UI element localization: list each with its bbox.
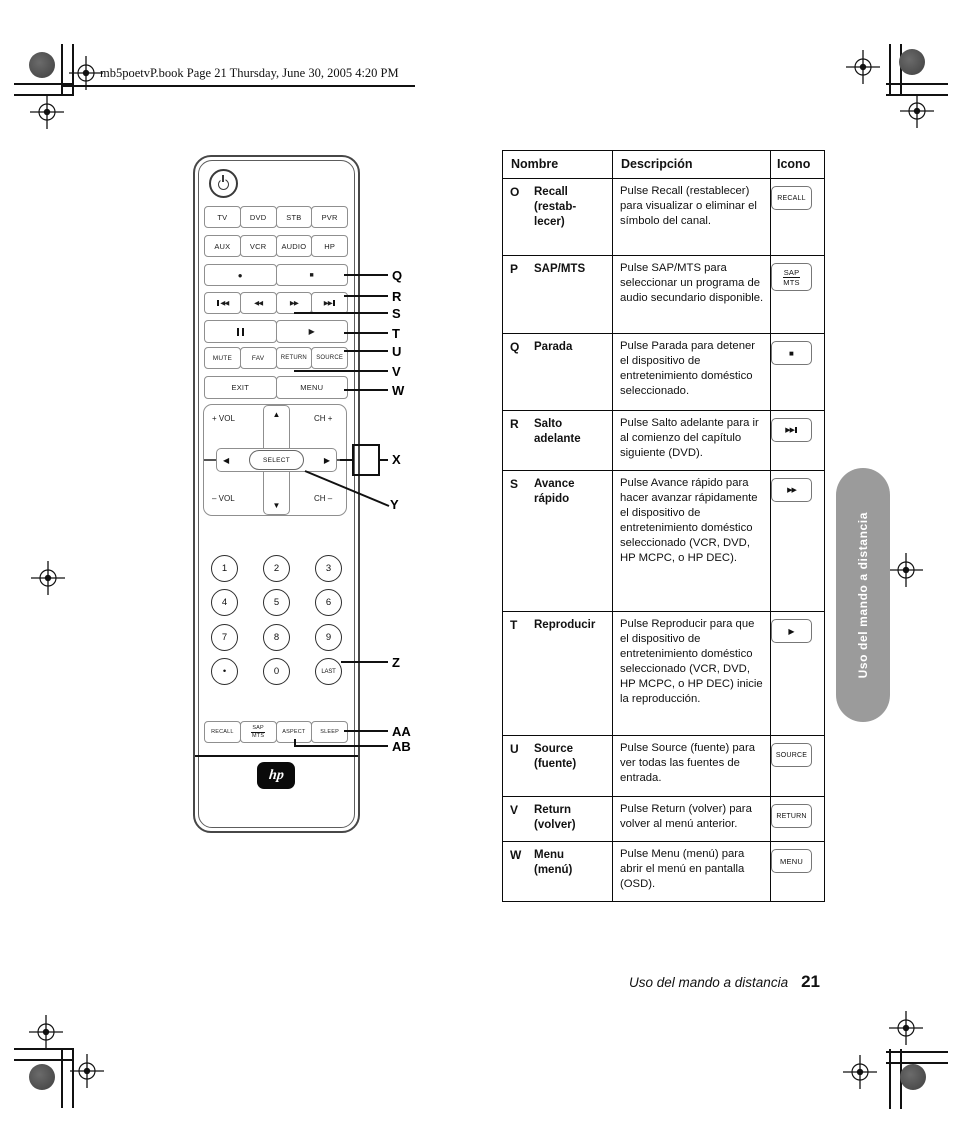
ink-registration-dot <box>29 1064 55 1090</box>
tv-button: TV <box>204 206 241 228</box>
callout-line-t <box>344 332 388 334</box>
row-description: Pulse Parada para detener el dispositivo… <box>613 334 770 403</box>
record-button: ● <box>204 264 277 286</box>
stop-icon: ■ <box>771 341 812 365</box>
registration-mark-icon <box>843 1055 877 1089</box>
row-description: Pulse Recall (restablecer) para visualiz… <box>613 179 770 233</box>
key-4: 4 <box>211 589 238 616</box>
key-8: 8 <box>263 624 290 651</box>
row-name: Reproducir <box>534 618 595 633</box>
crop-mark <box>886 1062 948 1064</box>
recall-icon: RECALL <box>771 186 812 210</box>
callout-line-w <box>344 389 388 391</box>
table-row: PSAP/MTS Pulse SAP/MTS para seleccionar … <box>503 256 825 334</box>
footer-chapter-label: Uso del mando a distancia <box>629 975 788 990</box>
table-row: WMenu (menú) Pulse Menu (menú) para abri… <box>503 842 825 902</box>
callout-line-u <box>344 350 388 352</box>
side-tab-label: Uso del mando a distancia <box>856 512 870 678</box>
row-letter: W <box>510 848 534 878</box>
table-row: TReproducir Pulse Reproducir para que el… <box>503 612 825 736</box>
arrow-down-icon: ▼ <box>273 501 281 510</box>
col-header-nombre: Nombre <box>503 151 613 179</box>
table-row: USource (fuente) Pulse Source (fuente) p… <box>503 736 825 797</box>
skip-back-button: ◀◀ <box>204 292 241 314</box>
crop-mark <box>889 1049 891 1109</box>
table-header-row: Nombre Descripción Icono <box>503 151 825 179</box>
last-button: LAST <box>315 658 342 685</box>
callout-y: Y <box>390 497 399 512</box>
stop-icon: ■ <box>310 272 314 279</box>
callout-z: Z <box>392 655 400 670</box>
callout-w: W <box>392 383 404 398</box>
stb-button: STB <box>276 206 313 228</box>
callout-line-ab <box>294 745 388 747</box>
row-description: Pulse Menu (menú) para abrir el menú en … <box>613 842 770 896</box>
row-letter: T <box>510 618 534 633</box>
row-name: Parada <box>534 340 572 355</box>
callout-aa: AA <box>392 724 411 739</box>
row-description: Pulse Return (volver) para volver al men… <box>613 797 770 836</box>
key-9: 9 <box>315 624 342 651</box>
source-button: SOURCE <box>311 347 348 369</box>
sleep-button: SLEEP <box>311 721 348 743</box>
registration-mark-icon <box>31 561 65 595</box>
row-name: Menu (menú) <box>534 848 572 878</box>
row-name: Return (volver) <box>534 803 576 833</box>
footer-page-number: 21 <box>801 972 820 992</box>
manual-page: mb5poetvP.book Page 21 Thursday, June 30… <box>0 0 954 1145</box>
row-name: Recall (restab- lecer) <box>534 185 576 230</box>
hp-button: HP <box>311 235 348 257</box>
callout-r: R <box>392 289 401 304</box>
crop-mark <box>61 44 63 96</box>
audio-button: AUDIO <box>276 235 313 257</box>
callout-q: Q <box>392 268 402 283</box>
table-row: SAvance rápido Pulse Avance rápido para … <box>503 471 825 612</box>
registration-mark-icon <box>900 94 934 128</box>
callout-line-r <box>344 295 388 297</box>
callout-x: X <box>392 452 401 467</box>
callout-line-v <box>294 370 388 372</box>
sap-mts-button: SAPMTS <box>240 721 277 743</box>
recall-button: RECALL <box>204 721 241 743</box>
exit-button: EXIT <box>204 376 277 399</box>
play-icon: ▶ <box>771 619 812 643</box>
table-row: QParada Pulse Parada para detener el dis… <box>503 334 825 411</box>
key-6: 6 <box>315 589 342 616</box>
pvr-button: PVR <box>311 206 348 228</box>
callout-u: U <box>392 344 401 359</box>
skip-back-icon <box>217 300 219 307</box>
row-name: SAP/MTS <box>534 262 585 277</box>
key-2: 2 <box>263 555 290 582</box>
aux-button: AUX <box>204 235 241 257</box>
key-5: 5 <box>263 589 290 616</box>
registration-mark-icon <box>889 1011 923 1045</box>
play-button: ▶ <box>276 320 349 343</box>
volume-down-label: – VOL <box>212 494 235 503</box>
fast-forward-button: ▶▶ <box>276 292 313 314</box>
crop-mark <box>14 1059 74 1061</box>
skip-forward-icon <box>333 300 335 307</box>
row-letter: Q <box>510 340 534 355</box>
ink-registration-dot <box>899 49 925 75</box>
row-name: Salto adelante <box>534 417 581 447</box>
row-letter: V <box>510 803 534 833</box>
return-button: RETURN <box>276 347 313 369</box>
header-rule <box>62 85 415 87</box>
rewind-button: ◀◀ <box>240 292 277 314</box>
row-description: Pulse SAP/MTS para seleccionar un progra… <box>613 256 770 310</box>
table-row: RSalto adelante Pulse Salto adelante par… <box>503 411 825 471</box>
fast-forward-icon: ▶▶ <box>290 299 298 307</box>
remote-divider <box>195 755 358 757</box>
sap-mts-icon: SAPMTS <box>771 263 812 291</box>
key-0: 0 <box>263 658 290 685</box>
menu-button: MENU <box>276 376 349 399</box>
key-7: 7 <box>211 624 238 651</box>
power-button <box>209 169 238 198</box>
crop-mark <box>886 83 948 85</box>
crop-mark <box>889 44 891 96</box>
power-icon <box>218 179 229 190</box>
ink-registration-dot <box>900 1064 926 1090</box>
arrow-left-icon: ◀ <box>223 456 229 465</box>
col-header-icono: Icono <box>771 151 825 179</box>
stop-button: ■ <box>276 264 349 286</box>
pause-icon <box>237 328 239 336</box>
registration-mark-icon <box>70 1054 104 1088</box>
row-description: Pulse Reproducir para que el dispositivo… <box>613 612 770 711</box>
menu-icon: MENU <box>771 849 812 873</box>
skip-forward-icon: ▶▶ <box>771 418 812 442</box>
skip-forward-button: ▶▶ <box>311 292 348 314</box>
callout-line-x <box>340 459 352 461</box>
callout-line-z <box>341 661 388 663</box>
document-header: mb5poetvP.book Page 21 Thursday, June 30… <box>100 66 399 81</box>
callout-line-q <box>344 274 388 276</box>
fast-forward-icon: ▶▶ <box>771 478 812 502</box>
registration-mark-icon <box>846 50 880 84</box>
callout-v: V <box>392 364 401 379</box>
col-header-descripcion: Descripción <box>613 151 771 179</box>
record-icon: ● <box>238 271 243 280</box>
fav-button: FAV <box>240 347 277 369</box>
registration-mark-icon <box>29 1015 63 1049</box>
row-description: Pulse Source (fuente) para ver todas las… <box>613 736 770 790</box>
callout-s: S <box>392 306 401 321</box>
arrow-up-icon: ▲ <box>273 410 281 419</box>
source-icon: SOURCE <box>771 743 812 767</box>
rewind-icon: ◀◀ <box>254 299 262 307</box>
crop-mark <box>61 1048 63 1108</box>
callout-line-s <box>294 312 388 314</box>
play-icon: ▶ <box>309 327 315 336</box>
chapter-side-tab: Uso del mando a distancia <box>836 468 890 722</box>
key-1: 1 <box>211 555 238 582</box>
return-icon: RETURN <box>771 804 812 828</box>
crop-mark <box>886 1051 948 1053</box>
table-row: VReturn (volver) Pulse Return (volver) p… <box>503 797 825 842</box>
callout-ab: AB <box>392 739 411 754</box>
row-description: Pulse Avance rápido para hacer avanzar r… <box>613 471 770 570</box>
volume-up-label: + VOL <box>212 414 235 423</box>
row-letter: S <box>510 477 534 507</box>
registration-mark-icon <box>889 553 923 587</box>
row-letter: R <box>510 417 534 447</box>
row-letter: P <box>510 262 534 277</box>
dvd-button: DVD <box>240 206 277 228</box>
mute-button: MUTE <box>204 347 241 369</box>
row-letter: U <box>510 742 534 772</box>
key-dot: • <box>211 658 238 685</box>
callout-line-y <box>303 469 391 509</box>
row-name: Source (fuente) <box>534 742 576 772</box>
channel-up-label: CH + <box>314 414 332 423</box>
key-3: 3 <box>315 555 342 582</box>
row-name: Avance rápido <box>534 477 575 507</box>
row-description: Pulse Salto adelante para ir al comienzo… <box>613 411 770 465</box>
pause-button <box>204 320 277 343</box>
button-spec-table: Nombre Descripción Icono ORecall (restab… <box>502 150 825 902</box>
callout-line-x2 <box>380 459 388 461</box>
row-letter: O <box>510 185 534 230</box>
ink-registration-dot <box>29 52 55 78</box>
callout-t: T <box>392 326 400 341</box>
page-footer: Uso del mando a distancia 21 <box>629 972 820 992</box>
table-row: ORecall (restab- lecer) Pulse Recall (re… <box>503 179 825 256</box>
vcr-button: VCR <box>240 235 277 257</box>
registration-mark-icon <box>30 95 64 129</box>
hp-logo: hp <box>257 762 295 789</box>
select-button: SELECT <box>249 450 304 470</box>
callout-line-aa <box>344 730 388 732</box>
arrow-right-icon: ▶ <box>324 456 330 465</box>
